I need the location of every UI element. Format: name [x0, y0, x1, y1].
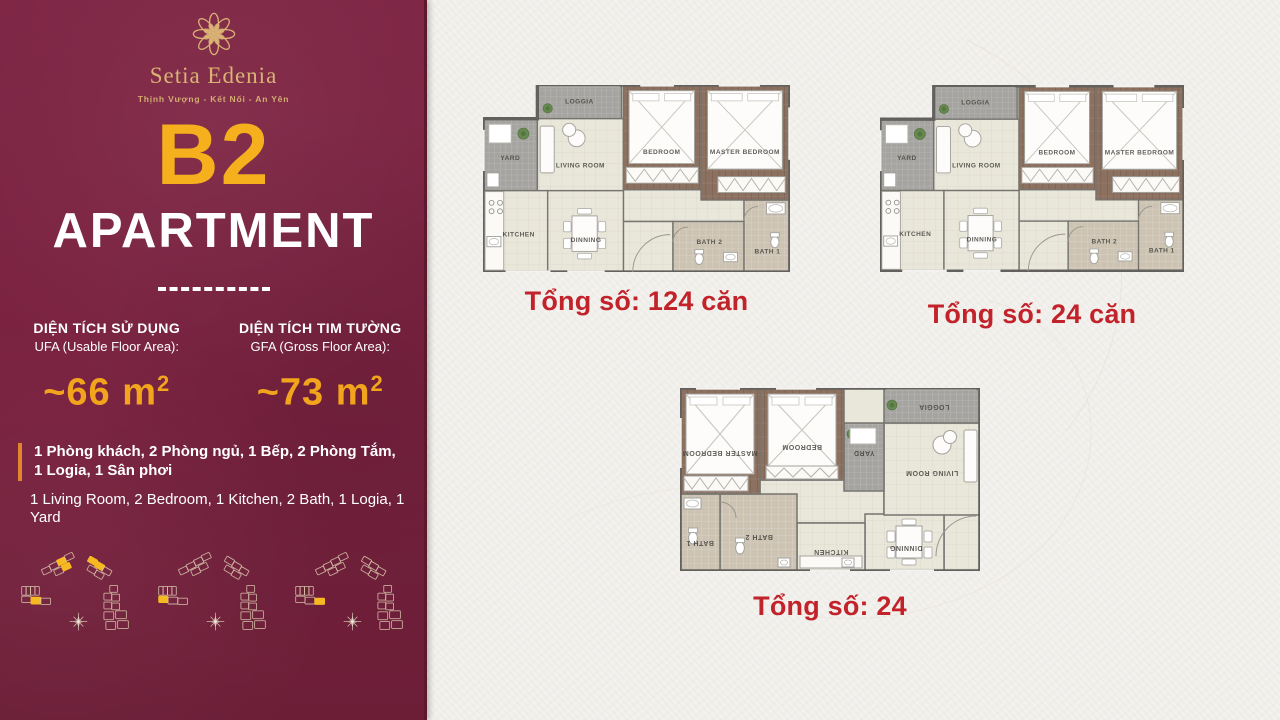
pillow — [748, 93, 779, 100]
area-gfa-subtitle: GFA (Gross Floor Area): — [214, 339, 428, 354]
unit-block — [255, 621, 266, 629]
chair — [960, 221, 967, 231]
features-vietnamese: 1 Phòng khách, 2 Phòng ngủ, 1 Bếp, 2 Phò… — [18, 443, 410, 481]
floor-plan-svg: LOGGIAYARDLIVING ROOMKITCHENDINNINGBATH … — [880, 85, 1184, 272]
unit-block — [198, 562, 208, 571]
unit-block — [249, 594, 257, 601]
unit-block — [241, 593, 249, 600]
toilet — [1090, 253, 1098, 264]
window-gap — [902, 270, 946, 272]
area-ufa-subtitle: UFA (Usable Floor Area): — [0, 339, 214, 354]
building-cluster-L — [22, 586, 51, 604]
unit-block — [106, 622, 116, 630]
room-label-bath1: BATH 1 — [754, 248, 780, 255]
chair — [578, 208, 592, 214]
highlighted-unit-block — [315, 598, 325, 604]
plant-core — [942, 107, 946, 111]
unit-block — [361, 565, 372, 574]
unit-block — [41, 598, 51, 604]
room-label-master: MASTER BEDROOM — [710, 149, 780, 156]
room-label-yard: YARD — [500, 155, 520, 162]
site-diagram-2 — [145, 548, 282, 660]
room-label-bath1: BATH 1 — [1149, 248, 1175, 255]
window-gap — [788, 107, 790, 159]
window-gap — [680, 418, 682, 468]
room-hallB — [1019, 221, 1068, 271]
room-label-kitchen: KITCHEN — [899, 231, 931, 238]
window-gap — [890, 569, 934, 571]
pillow — [772, 397, 799, 405]
compass-center — [351, 620, 354, 623]
window-gap — [506, 270, 551, 272]
brochure-slide: Setia Edenia Thịnh Vượng - Kết Nối - An … — [0, 0, 1280, 720]
room-label-loggia: LOGGIA — [919, 403, 950, 410]
dining-table — [896, 526, 922, 558]
unit-block — [112, 594, 120, 601]
room-label-yard: YARD — [853, 449, 874, 456]
unit-block — [390, 611, 401, 619]
chair — [974, 253, 988, 259]
room-label-living: LIVING ROOM — [906, 469, 959, 476]
unit-block — [378, 612, 388, 620]
room-hallB — [944, 514, 980, 571]
area-gfa-value-text: ~73 m — [257, 372, 371, 414]
building-cluster-B — [104, 585, 128, 629]
unit-block — [224, 556, 235, 565]
chair — [598, 222, 605, 232]
room-label-yard: YARD — [897, 155, 917, 162]
chair — [974, 208, 988, 214]
site-location-diagrams — [8, 548, 420, 660]
features-vietnamese-text: 1 Phòng khách, 2 Phòng ngủ, 1 Bếp, 2 Phò… — [34, 443, 406, 481]
area-gfa: DIỆN TÍCH TIM TƯỜNG GFA (Gross Floor Are… — [214, 320, 428, 415]
room-label-kitchen: KITCHEN — [814, 548, 849, 555]
area-ufa-value: ~66 m2 — [0, 371, 214, 415]
room-label-dinning: DINNING — [967, 237, 998, 244]
window-gap — [1182, 108, 1184, 160]
pillow — [1060, 94, 1086, 101]
yard-mat — [850, 428, 876, 444]
room-label-bath2: BATH 2 — [1091, 238, 1117, 245]
room-label-bath2: BATH 2 — [745, 533, 773, 540]
unit-block — [201, 552, 211, 561]
round-table — [944, 431, 957, 444]
toilet-tank — [1165, 232, 1174, 236]
building-cluster-L — [159, 586, 188, 604]
building-cluster-M — [177, 552, 215, 580]
building-cluster-B — [241, 585, 265, 629]
unit-block — [104, 602, 112, 609]
unit-block — [231, 570, 242, 579]
unit-block — [378, 593, 386, 600]
unit-block — [361, 556, 372, 565]
chair — [902, 559, 916, 565]
floor-plan-svg: DINNINGKITCHENBATH 2BATH 1LIVING ROOMYAR… — [680, 388, 980, 571]
window-gap — [696, 388, 740, 390]
window-gap — [963, 270, 1000, 272]
room-label-bedroom: BEDROOM — [1039, 149, 1076, 156]
unit-block — [378, 602, 386, 609]
compass-icon — [70, 613, 88, 631]
brand-flower-icon — [192, 12, 236, 56]
sofa — [937, 127, 951, 173]
pillow — [805, 397, 832, 405]
unit-block — [241, 602, 249, 609]
info-sidebar: Setia Edenia Thịnh Vượng - Kết Nối - An … — [0, 0, 427, 720]
toilet-tank — [695, 250, 704, 254]
floor-plan-3: DINNINGKITCHENBATH 2BATH 1LIVING ROOMYAR… — [680, 388, 980, 571]
feature-list: 1 Phòng khách, 2 Phòng ngủ, 1 Bếp, 2 Phò… — [18, 443, 410, 528]
unit-block — [116, 611, 127, 619]
room-bath2 — [673, 222, 744, 272]
window-gap — [640, 85, 674, 87]
unit-block — [163, 586, 167, 595]
unit-block — [296, 596, 305, 602]
pillow — [1142, 94, 1173, 101]
plant-core — [546, 106, 550, 110]
compass-center — [214, 620, 217, 623]
unit-block — [110, 585, 118, 592]
pillow — [723, 397, 750, 405]
sofa — [540, 126, 554, 173]
unit-block — [249, 603, 257, 610]
dining-table — [572, 216, 597, 252]
unit-block — [305, 597, 315, 604]
unit-block — [305, 586, 309, 595]
toilet-tank — [771, 233, 780, 237]
chair — [887, 531, 895, 542]
plant-core — [917, 132, 922, 137]
chair — [924, 547, 932, 558]
plan-1-caption: Tổng số: 124 căn — [483, 286, 790, 317]
toilet — [1165, 236, 1173, 247]
room-bath2 — [1068, 221, 1138, 271]
sofa — [964, 430, 977, 482]
unit-block — [247, 585, 255, 592]
features-english-text: 1 Living Room, 2 Bedroom, 1 Kitchen, 2 B… — [30, 491, 408, 529]
compass-icon — [207, 613, 225, 631]
room-label-bedroom: BEDROOM — [643, 149, 680, 156]
building-cluster-B — [378, 585, 402, 629]
unit-block — [94, 570, 105, 579]
unit-block — [384, 585, 392, 592]
feature-accent-bar — [18, 443, 22, 481]
window-gap — [1114, 85, 1155, 87]
room-label-living: LIVING ROOM — [556, 162, 605, 169]
room-hallB — [623, 222, 673, 272]
kitchen-counter — [485, 192, 504, 271]
unit-block — [239, 567, 250, 576]
appliance — [884, 173, 896, 187]
round-table — [563, 123, 576, 136]
building-cluster-T — [357, 556, 387, 582]
unit-block — [335, 562, 345, 571]
unit-block — [224, 565, 235, 574]
pillow — [1028, 94, 1054, 101]
floor-plan-svg: LOGGIAYARDLIVING ROOMKITCHENDINNINGBATH … — [483, 85, 790, 272]
room-label-living: LIVING ROOM — [952, 162, 1001, 169]
plant-core — [890, 403, 895, 408]
unit-block — [31, 586, 35, 595]
pillow — [665, 93, 691, 100]
unit-block — [296, 586, 300, 595]
yard-mat — [489, 124, 511, 143]
room-label-bedroom: BEDROOM — [782, 443, 822, 450]
building-cluster-M — [40, 552, 78, 580]
unit-type-title: APARTMENT — [0, 207, 427, 256]
unit-block — [168, 597, 178, 604]
window-gap — [567, 270, 604, 272]
pillow — [711, 93, 742, 100]
area-ufa: DIỆN TÍCH SỬ DỤNG UFA (Usable Floor Area… — [0, 320, 214, 415]
window-gap — [1036, 85, 1069, 87]
unit-block — [253, 611, 264, 619]
chair — [994, 221, 1001, 231]
building-cluster-M — [314, 552, 352, 580]
chair — [578, 253, 592, 259]
window-gap — [719, 85, 760, 87]
unit-block — [380, 622, 390, 630]
window-gap — [880, 130, 882, 171]
chair — [564, 222, 571, 232]
pillow — [1106, 94, 1137, 101]
area-ufa-title: DIỆN TÍCH SỬ DỤNG — [0, 320, 214, 336]
highlighted-unit-block — [31, 597, 41, 604]
dining-table — [968, 216, 993, 251]
brand-logo: Setia Edenia Thịnh Vượng - Kết Nối - An … — [0, 12, 427, 104]
unit-block — [241, 612, 251, 620]
unit-block — [118, 621, 129, 629]
window-gap — [810, 569, 850, 571]
floor-plan-1: LOGGIAYARDLIVING ROOMKITCHENDINNINGBATH … — [483, 85, 790, 272]
unit-block — [64, 552, 74, 561]
unit-block — [231, 561, 242, 570]
room-label-loggia: LOGGIA — [961, 99, 989, 106]
building-cluster-T — [83, 556, 113, 582]
dashed-divider — [158, 287, 270, 291]
highlighted-unit-block — [159, 596, 168, 602]
unit-block — [368, 561, 379, 570]
unit-block — [35, 586, 39, 595]
plan-3-caption: Tổng số: 24 — [680, 591, 980, 622]
compass-center — [77, 620, 80, 623]
room-label-master: MASTER BEDROOM — [682, 449, 757, 456]
room-label-bath1: BATH 1 — [686, 539, 714, 546]
area-gfa-value: ~73 m2 — [214, 371, 428, 415]
room-label-dinning: DINNING — [571, 237, 602, 244]
pillow — [690, 397, 717, 405]
appliance — [487, 173, 499, 187]
room-label-master: MASTER BEDROOM — [1105, 149, 1174, 156]
building-cluster-L — [296, 586, 325, 604]
yard-mat — [886, 125, 908, 144]
unit-block — [392, 621, 403, 629]
unit-code: B2 — [0, 112, 427, 198]
room-label-dinning: DINNING — [889, 544, 922, 551]
toilet-tank — [735, 538, 744, 543]
area-summary: DIỆN TÍCH SỬ DỤNG UFA (Usable Floor Area… — [0, 320, 427, 415]
unit-block — [168, 586, 172, 595]
chair — [924, 531, 932, 542]
flower-center — [212, 32, 216, 36]
toilet-tank — [1090, 249, 1099, 253]
toilet — [771, 236, 779, 247]
area-gfa-title: DIỆN TÍCH TIM TƯỜNG — [214, 320, 428, 336]
toilet — [695, 253, 703, 264]
area-gfa-sup: 2 — [371, 371, 384, 396]
room-label-bath2: BATH 2 — [696, 239, 722, 246]
toilet — [736, 542, 745, 554]
room-label-kitchen: KITCHEN — [503, 231, 535, 238]
kitchen-counter — [882, 191, 901, 269]
unit-block — [22, 586, 26, 595]
compass-icon — [344, 613, 362, 631]
unit-block — [112, 603, 120, 610]
plant-core — [521, 131, 526, 136]
plan-2-caption: Tổng số: 24 căn — [880, 299, 1184, 330]
window-gap — [776, 388, 816, 390]
pillow — [633, 93, 659, 100]
unit-block — [386, 603, 394, 610]
unit-block — [22, 596, 31, 602]
area-ufa-value-text: ~66 m — [43, 372, 157, 414]
chair — [902, 519, 916, 525]
unit-block — [300, 586, 304, 595]
unit-block — [178, 598, 188, 604]
unit-block — [386, 594, 394, 601]
sink — [778, 558, 790, 567]
unit-block — [309, 586, 313, 595]
floor-plan-2: LOGGIAYARDLIVING ROOMKITCHENDINNINGBATH … — [880, 85, 1184, 272]
unit-block — [376, 567, 387, 576]
unit-block — [104, 593, 112, 600]
unit-block — [26, 586, 30, 595]
unit-block — [368, 570, 379, 579]
unit-block — [104, 612, 114, 620]
brand-name: Setia Edenia — [0, 63, 427, 89]
site-diagram-1 — [8, 548, 145, 660]
round-table — [959, 124, 972, 137]
unit-block — [243, 622, 253, 630]
toilet-tank — [688, 528, 697, 533]
window-gap — [483, 130, 485, 171]
site-diagram-3 — [282, 548, 419, 660]
area-ufa-sup: 2 — [157, 371, 170, 396]
building-cluster-T — [220, 556, 250, 582]
unit-block — [172, 586, 176, 595]
brand-tagline: Thịnh Vượng - Kết Nối - An Yên — [0, 94, 427, 104]
unit-block — [338, 552, 348, 561]
room-label-loggia: LOGGIA — [565, 99, 594, 106]
unit-block — [159, 586, 163, 595]
sink — [842, 558, 854, 567]
